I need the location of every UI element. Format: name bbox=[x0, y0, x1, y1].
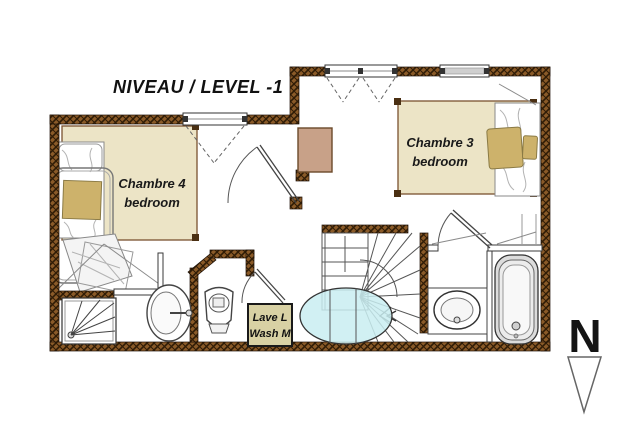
door-bathroom bbox=[438, 210, 492, 248]
wall-right bbox=[541, 67, 550, 351]
washing-machine: Lave L Wash M bbox=[248, 304, 292, 346]
page-title: NIVEAU / LEVEL -1 bbox=[113, 77, 283, 97]
wall-wc-left bbox=[190, 268, 198, 342]
chambre4-label-fr: Chambre 4 bbox=[118, 176, 186, 191]
north-letter: N bbox=[568, 310, 601, 362]
ceiling-slope-line bbox=[497, 232, 536, 244]
window-chambre3 bbox=[440, 65, 489, 77]
window-hall bbox=[325, 65, 397, 102]
partition-bathroom bbox=[428, 245, 438, 251]
north-triangle bbox=[568, 357, 601, 412]
window-swing-dashed bbox=[327, 78, 395, 102]
water-heater bbox=[300, 288, 392, 344]
bed-chambre3 bbox=[487, 84, 540, 244]
washer-label-fr: Lave L bbox=[253, 312, 288, 324]
pillow bbox=[59, 144, 102, 171]
north-arrow: N bbox=[568, 310, 602, 412]
tub-drain bbox=[512, 322, 520, 330]
ceiling-slope-line bbox=[432, 233, 486, 244]
wardrobe bbox=[298, 128, 332, 172]
pillow bbox=[522, 136, 537, 160]
floor-plan-page: NIVEAU / LEVEL -1 Chambre 4 bedroom Cham… bbox=[0, 0, 640, 427]
bed-post bbox=[394, 98, 401, 105]
wall-top-left bbox=[50, 115, 183, 124]
wall-wc-right bbox=[246, 250, 254, 276]
toilet-base bbox=[209, 324, 229, 333]
wall-left bbox=[50, 115, 59, 351]
wall-stair-top bbox=[322, 225, 408, 233]
bed-post bbox=[192, 234, 199, 241]
bathtub bbox=[495, 255, 538, 344]
pillow bbox=[487, 127, 524, 169]
wall-top-left bbox=[247, 115, 293, 124]
bed-post bbox=[394, 190, 401, 197]
chambre3-label-en: bedroom bbox=[412, 154, 468, 169]
wall-bottom bbox=[50, 342, 550, 351]
partition-shower bbox=[158, 253, 163, 291]
basin-drain bbox=[454, 317, 460, 323]
blanket bbox=[62, 180, 101, 219]
chambre3-label-fr: Chambre 3 bbox=[406, 135, 474, 150]
washbasin-left bbox=[147, 285, 192, 341]
wall-stair-right bbox=[420, 233, 428, 333]
door-chambre4 bbox=[228, 145, 299, 203]
toilet-cistern bbox=[213, 298, 224, 307]
shower bbox=[62, 298, 116, 344]
partition-bathtub bbox=[487, 251, 492, 342]
wall-top-right bbox=[397, 67, 440, 76]
wall-top-right bbox=[290, 67, 325, 76]
chambre4-label-en: bedroom bbox=[124, 195, 180, 210]
partition-bathroom bbox=[488, 245, 542, 251]
washer-label-en: Wash M bbox=[249, 328, 291, 340]
floor-plan-drawing: NIVEAU / LEVEL -1 Chambre 4 bedroom Cham… bbox=[0, 0, 640, 427]
toilet bbox=[205, 288, 233, 334]
